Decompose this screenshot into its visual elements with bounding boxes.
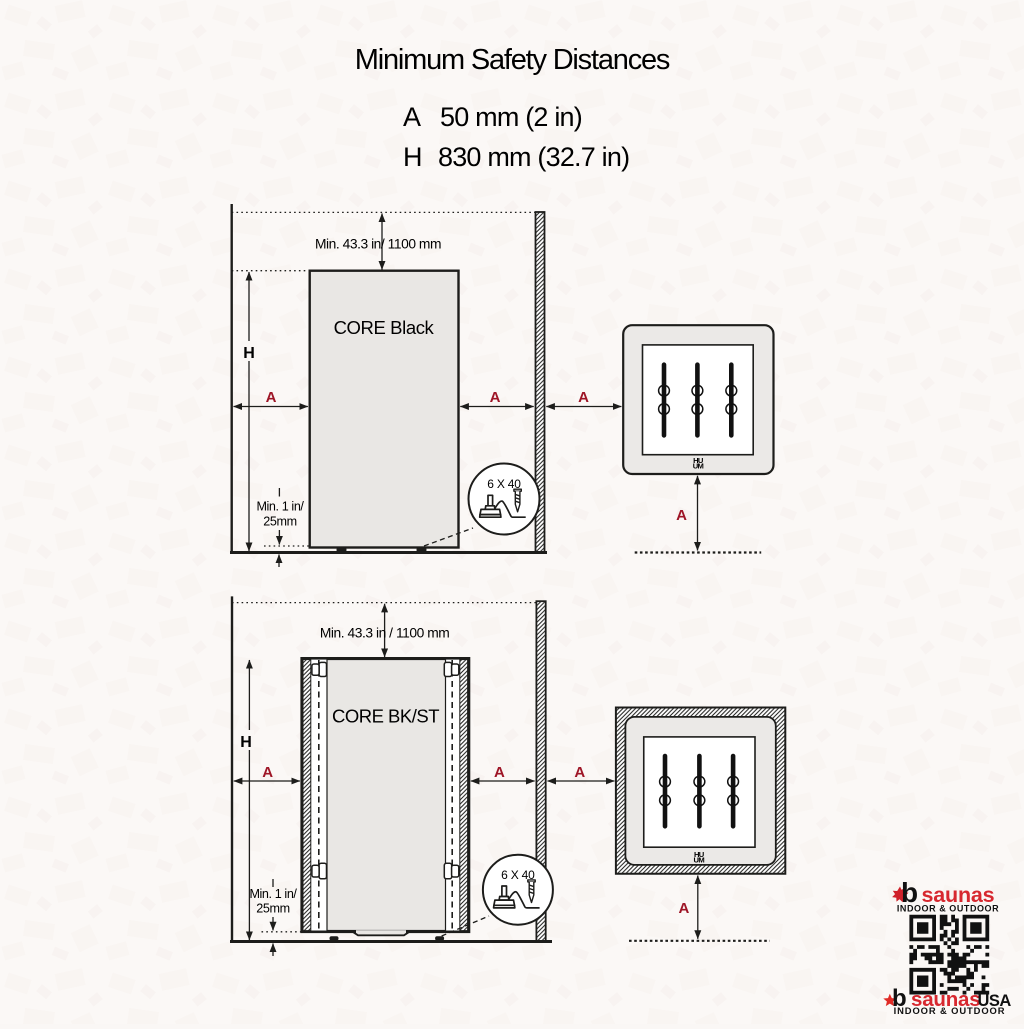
svg-text:CORE Black: CORE Black [334,317,435,338]
svg-text:INDOOR & OUTDOOR: INDOOR & OUTDOOR [897,904,999,914]
svg-text:A: A [676,507,687,524]
svg-text:50 mm (2 in): 50 mm (2 in) [440,102,582,132]
svg-text:Min. 43.3 in / 1100 mm: Min. 43.3 in / 1100 mm [320,626,449,641]
svg-text:INDOOR & OUTDOOR: INDOOR & OUTDOOR [894,1005,1006,1016]
svg-text:Minimum Safety Distances: Minimum Safety Distances [355,44,670,76]
svg-text:Min. 43.3 in/ 1100 mm: Min. 43.3 in/ 1100 mm [315,237,441,252]
svg-text:UM: UM [693,461,704,470]
svg-text:H: H [240,734,252,751]
svg-text:CORE BK/ST: CORE BK/ST [332,705,439,726]
svg-text:UM: UM [694,855,705,864]
svg-text:A: A [679,900,690,917]
svg-text:A: A [578,389,589,406]
svg-text:Min. 1 in/: Min. 1 in/ [249,887,297,901]
svg-text:Min. 1 in/: Min. 1 in/ [256,500,304,514]
svg-text:A: A [266,389,277,406]
svg-text:A: A [262,764,273,781]
svg-text:H: H [403,142,423,172]
svg-text:830 mm (32.7 in): 830 mm (32.7 in) [438,142,629,172]
svg-text:A: A [490,389,501,406]
svg-text:A: A [403,102,421,132]
svg-text:A: A [574,764,585,781]
svg-text:25mm: 25mm [263,514,296,528]
svg-text:H: H [243,345,255,362]
svg-text:25mm: 25mm [256,902,289,916]
svg-text:A: A [494,764,505,781]
